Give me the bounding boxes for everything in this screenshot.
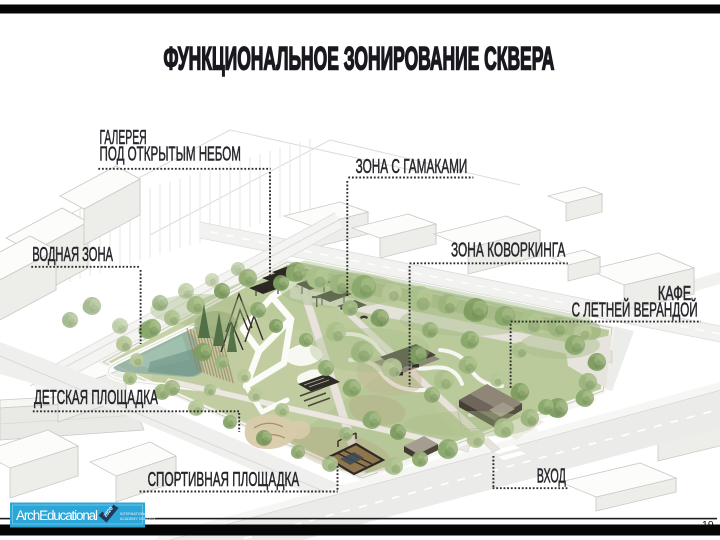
svg-text:ЗОНА КОВОРКИНГА: ЗОНА КОВОРКИНГА [451,240,565,262]
svg-text:INTERNATIONAL: INTERNATIONAL [120,512,149,516]
svg-text:С ЛЕТНЕЙ ВЕРАНДОЙ: С ЛЕТНЕЙ ВЕРАНДОЙ [572,298,698,321]
svg-text:ЗОНА С ГАМАКАМИ: ЗОНА С ГАМАКАМИ [356,156,468,178]
svg-text:ACADEMY CONTEST: ACADEMY CONTEST [120,517,157,521]
svg-text:ФУНКЦИОНАЛЬНОЕ ЗОНИРОВАНИЕ СКВ: ФУНКЦИОНАЛЬНОЕ ЗОНИРОВАНИЕ СКВЕРА [164,42,555,77]
svg-text:ВХОД: ВХОД [537,465,566,487]
svg-text:ArchEducational: ArchEducational [16,508,98,523]
svg-text:ДЕТСКАЯ ПЛОЩАДКА: ДЕТСКАЯ ПЛОЩАДКА [34,387,158,409]
svg-text:ПОД ОТКРЫТЫМ НЕБОМ: ПОД ОТКРЫТЫМ НЕБОМ [100,143,241,165]
svg-text:ВОДНАЯ ЗОНА: ВОДНАЯ ЗОНА [32,244,113,266]
svg-text:СПОРТИВНАЯ ПЛОЩАДКА: СПОРТИВНАЯ ПЛОЩАДКА [148,469,300,491]
